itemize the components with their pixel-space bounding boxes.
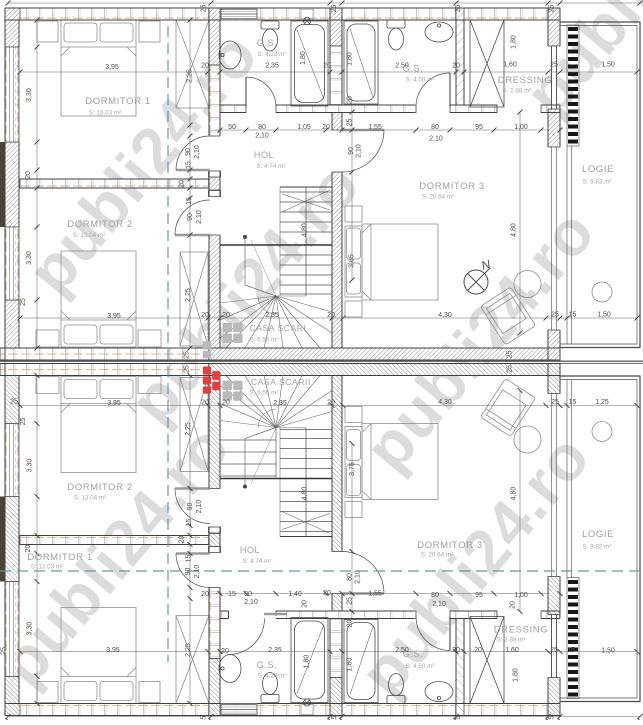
svg-text:2,10: 2,10 (244, 599, 258, 606)
svg-text:1,55: 1,55 (368, 591, 382, 598)
svg-text:1,80: 1,80 (513, 668, 520, 682)
svg-text:4,30: 4,30 (438, 312, 452, 319)
svg-text:2,10: 2,10 (432, 601, 446, 608)
svg-text:S: 4.74 m²: S: 4.74 m² (256, 163, 285, 170)
svg-text:15: 15 (567, 647, 575, 654)
svg-text:2,25: 2,25 (187, 69, 194, 83)
svg-text:20: 20 (323, 590, 331, 597)
svg-text:2,10: 2,10 (194, 565, 201, 579)
svg-text:1,50: 1,50 (601, 648, 615, 655)
svg-text:90: 90 (185, 148, 192, 156)
svg-text:S: 9.83 m²: S: 9.83 m² (582, 179, 611, 186)
svg-text:CASA SCARI: CASA SCARI (249, 323, 306, 333)
svg-text:25: 25 (201, 5, 208, 13)
svg-text:1,60: 1,60 (505, 647, 519, 654)
svg-text:25: 25 (184, 351, 191, 359)
svg-text:80: 80 (244, 591, 252, 598)
svg-text:3,95: 3,95 (105, 64, 119, 71)
svg-text:1,05: 1,05 (297, 124, 311, 131)
svg-text:1,50: 1,50 (597, 312, 611, 319)
svg-text:15: 15 (186, 555, 193, 563)
svg-text:20: 20 (222, 400, 230, 407)
svg-text:3,95: 3,95 (107, 313, 121, 320)
svg-text:90: 90 (187, 213, 194, 221)
svg-text:G.S.: G.S. (257, 660, 277, 670)
svg-text:1,55: 1,55 (368, 124, 382, 131)
svg-text:80: 80 (347, 573, 354, 581)
svg-text:25: 25 (455, 5, 462, 13)
svg-text:15: 15 (569, 399, 577, 406)
svg-text:25: 25 (549, 5, 556, 13)
svg-text:S: 9.82 m²: S: 9.82 m² (582, 544, 611, 551)
svg-text:25: 25 (455, 716, 462, 720)
svg-text:90: 90 (348, 147, 355, 155)
svg-text:20: 20 (452, 63, 460, 70)
svg-text:20: 20 (179, 536, 186, 544)
svg-text:1,80: 1,80 (347, 658, 354, 672)
svg-text:2,35: 2,35 (265, 63, 279, 70)
svg-text:20: 20 (323, 63, 331, 70)
svg-text:3,30: 3,30 (26, 251, 33, 265)
svg-text:S: 4.74 m²: S: 4.74 m² (242, 558, 271, 565)
svg-text:1,40: 1,40 (288, 591, 302, 598)
svg-text:S: 4.23 m²: S: 4.23 m² (257, 673, 286, 680)
svg-text:2,10: 2,10 (196, 500, 203, 514)
svg-text:25: 25 (550, 62, 558, 69)
svg-text:3,65: 3,65 (349, 254, 356, 268)
svg-text:20: 20 (510, 601, 517, 609)
svg-text:20: 20 (221, 648, 229, 655)
svg-text:2,50: 2,50 (395, 647, 409, 654)
svg-text:2,10: 2,10 (194, 145, 201, 159)
svg-text:G.S.: G.S. (257, 38, 277, 48)
svg-text:DORMITOR 3: DORMITOR 3 (417, 540, 482, 551)
svg-text:1,80: 1,80 (347, 52, 354, 66)
svg-text:HOL: HOL (254, 150, 274, 160)
svg-text:80: 80 (431, 124, 439, 131)
svg-text:25: 25 (507, 365, 514, 373)
svg-text:15: 15 (186, 197, 193, 205)
svg-text:HOL: HOL (240, 545, 260, 555)
svg-text:3,75: 3,75 (349, 462, 356, 476)
svg-text:DRESSING: DRESSING (494, 625, 548, 636)
svg-text:20: 20 (25, 171, 32, 179)
svg-text:25: 25 (1, 647, 8, 655)
svg-text:3,30: 3,30 (27, 459, 34, 473)
svg-text:50: 50 (228, 124, 236, 131)
svg-text:20: 20 (179, 180, 186, 188)
svg-text:2,10: 2,10 (255, 133, 269, 140)
svg-text:2,10: 2,10 (355, 570, 362, 584)
svg-text:25: 25 (184, 365, 191, 373)
svg-text:1,60: 1,60 (503, 62, 517, 69)
svg-text:25: 25 (331, 716, 338, 720)
svg-text:S: 13.04 m²: S: 13.04 m² (73, 232, 106, 239)
svg-text:S: 4.50 m²: S: 4.50 m² (405, 77, 434, 84)
svg-text:95: 95 (475, 592, 483, 599)
svg-text:1,00: 1,00 (514, 124, 528, 131)
svg-text:20: 20 (327, 312, 335, 319)
svg-text:1,80: 1,80 (300, 51, 307, 65)
svg-text:3,30: 3,30 (27, 622, 34, 636)
svg-text:S: 2.88 m²: S: 2.88 m² (496, 637, 525, 644)
svg-text:S: 4.50 m²: S: 4.50 m² (405, 663, 434, 670)
svg-text:S: 2.88 m²: S: 2.88 m² (502, 88, 531, 95)
svg-text:20: 20 (347, 620, 354, 628)
svg-text:CASA SCARII: CASA SCARII (251, 377, 311, 387)
svg-text:DORMITOR 1: DORMITOR 1 (27, 552, 92, 563)
svg-text:2,25: 2,25 (185, 288, 192, 302)
svg-text:LOGIE: LOGIE (582, 164, 614, 175)
svg-text:DORMITOR 2: DORMITOR 2 (67, 219, 132, 230)
svg-text:20: 20 (347, 96, 354, 104)
svg-text:25: 25 (331, 5, 338, 13)
svg-text:S: 4.23 m²: S: 4.23 m² (257, 51, 286, 58)
svg-text:2,35: 2,35 (273, 400, 287, 407)
svg-text:2,10: 2,10 (356, 144, 363, 158)
svg-text:90: 90 (187, 503, 194, 511)
svg-text:15: 15 (186, 161, 193, 169)
svg-text:90: 90 (185, 568, 192, 576)
svg-text:LOGIE: LOGIE (582, 529, 614, 540)
svg-text:3,95: 3,95 (107, 400, 121, 407)
svg-text:25: 25 (551, 399, 559, 406)
svg-text:3,30: 3,30 (26, 88, 33, 102)
svg-text:20: 20 (25, 545, 32, 553)
svg-text:2,50: 2,50 (395, 63, 409, 70)
svg-text:25: 25 (20, 418, 27, 426)
svg-text:1,80: 1,80 (304, 655, 311, 669)
svg-text:15: 15 (186, 519, 193, 527)
svg-text:S: 13.03 m²: S: 13.03 m² (89, 110, 122, 117)
svg-text:25: 25 (10, 399, 18, 406)
svg-text:4,80: 4,80 (511, 487, 518, 501)
svg-text:20: 20 (302, 600, 309, 608)
svg-text:4,30: 4,30 (438, 399, 452, 406)
svg-text:4,80: 4,80 (511, 223, 518, 237)
svg-text:20: 20 (474, 647, 482, 654)
svg-text:4,80: 4,80 (302, 223, 309, 237)
svg-text:80: 80 (431, 592, 439, 599)
svg-text:20: 20 (201, 63, 209, 70)
svg-text:S: 13.03 m²: S: 13.03 m² (31, 564, 64, 571)
svg-text:20: 20 (327, 400, 335, 407)
svg-text:3,95: 3,95 (106, 647, 120, 654)
svg-text:S: 6.55 m²: S: 6.55 m² (249, 337, 278, 344)
svg-text:20: 20 (201, 400, 209, 407)
svg-text:4,80: 4,80 (302, 487, 309, 501)
svg-text:25: 25 (507, 351, 514, 359)
svg-text:S: 13.04 m²: S: 13.04 m² (74, 495, 107, 502)
svg-text:2,25: 2,25 (185, 422, 192, 436)
svg-text:25: 25 (550, 647, 558, 654)
svg-text:2,35: 2,35 (265, 312, 279, 319)
svg-text:DORMITOR 2: DORMITOR 2 (67, 482, 132, 493)
svg-text:20: 20 (201, 591, 209, 598)
svg-text:1,80: 1,80 (511, 35, 518, 49)
svg-text:20: 20 (322, 124, 330, 131)
svg-text:25: 25 (20, 298, 27, 306)
svg-text:2,35: 2,35 (268, 647, 282, 654)
svg-text:1,25: 1,25 (595, 399, 609, 406)
svg-text:25: 25 (347, 119, 354, 127)
svg-text:25: 25 (347, 597, 354, 605)
svg-text:15: 15 (228, 591, 236, 598)
svg-text:2,25: 2,25 (185, 643, 192, 657)
svg-text:2,10: 2,10 (429, 136, 443, 143)
svg-text:DORMITOR 1: DORMITOR 1 (85, 96, 150, 107)
svg-text:25: 25 (201, 716, 208, 720)
svg-text:25: 25 (549, 716, 556, 720)
svg-text:2,10: 2,10 (196, 210, 203, 224)
svg-text:1,50: 1,50 (601, 62, 615, 69)
svg-text:80: 80 (258, 124, 266, 131)
svg-text:S: 6.55 m²: S: 6.55 m² (249, 390, 278, 397)
svg-text:20: 20 (222, 312, 230, 319)
svg-text:95: 95 (475, 124, 483, 131)
svg-text:1,00: 1,00 (514, 592, 528, 599)
svg-text:15: 15 (569, 312, 577, 319)
svg-text:DRESSING: DRESSING (498, 75, 552, 86)
svg-text:25: 25 (551, 312, 559, 319)
svg-text:20: 20 (452, 647, 460, 654)
svg-text:S: 20.64 m²: S: 20.64 m² (422, 194, 455, 201)
svg-text:S: 20.64 m²: S: 20.64 m² (421, 552, 454, 559)
svg-text:DORMITOR 3: DORMITOR 3 (419, 181, 484, 192)
svg-text:20: 20 (201, 312, 209, 319)
